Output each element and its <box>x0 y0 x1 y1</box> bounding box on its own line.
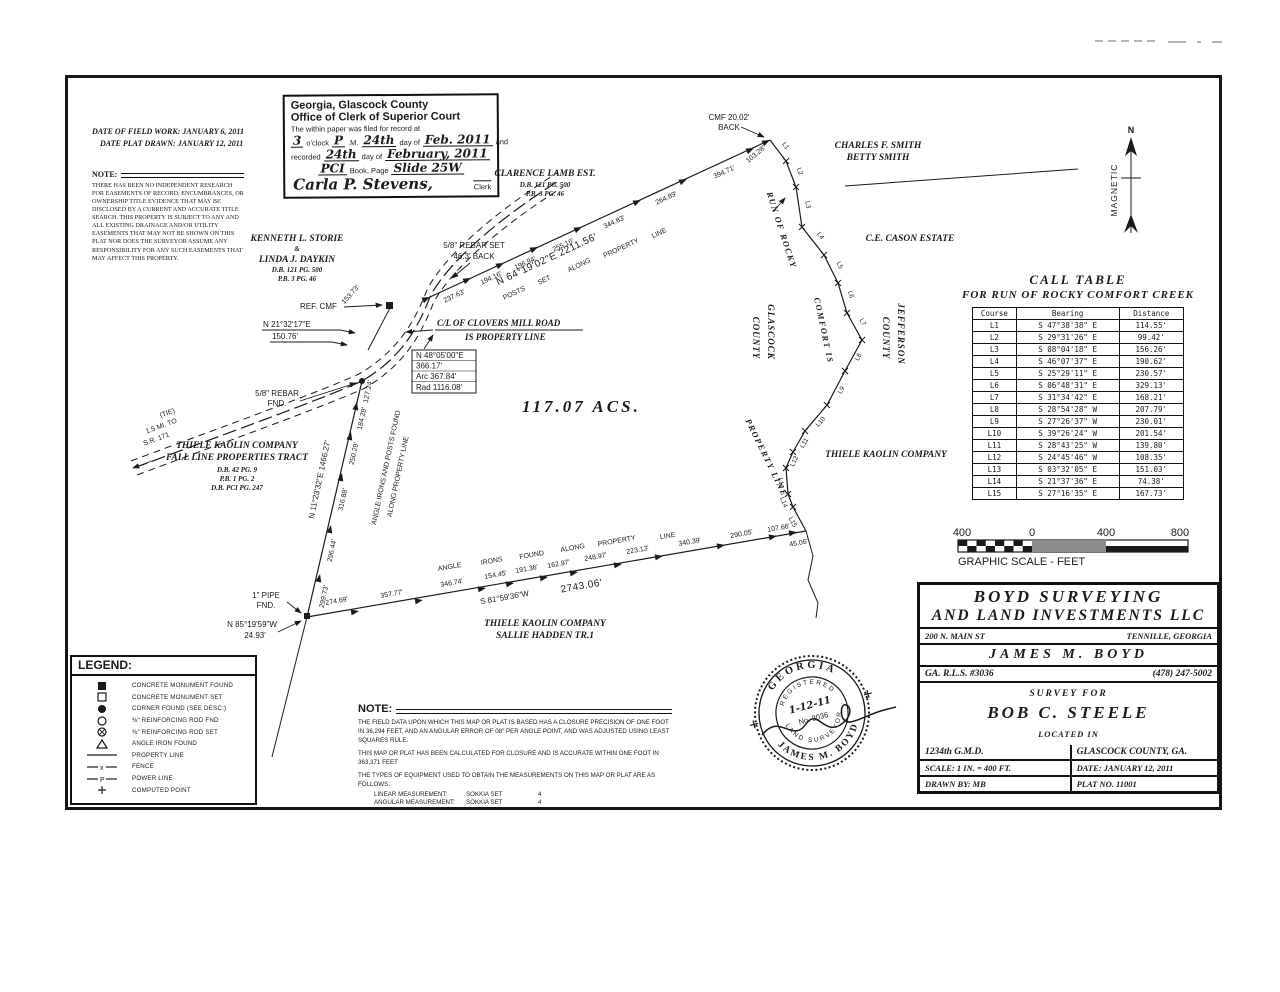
scale-date-row: SCALE: 1 IN. = 400 FT. DATE: JANUARY 12,… <box>920 759 1217 775</box>
phone-number: (478) 247-5002 <box>1153 669 1212 679</box>
cell-bearing: S 08°04'18" E <box>1016 344 1119 356</box>
road-tie-label: 1.5 MI. TO <box>145 418 179 436</box>
stamp-office: Office of Clerk of Superior Court <box>291 110 491 123</box>
road-segment-distance: 153.73' <box>341 284 361 306</box>
adjoiner-storie-ref: D.B. 121 PG. 500 <box>271 266 323 274</box>
county-glascock: GLASCOCK <box>766 304 776 360</box>
scale-tick: 0 <box>1029 527 1035 539</box>
plat-number: PLAT NO. 11001 <box>1072 777 1217 791</box>
cell-course: L3 <box>973 344 1017 356</box>
legend: LEGEND: CONCRETE MONUMENT FOUND CONCRETE… <box>70 655 257 805</box>
road-tie-arrow <box>133 461 152 468</box>
adjoiner-lamb-ref: P.B. 3 PG. 46 <box>526 190 565 198</box>
cell-bearing: S 47°38'38" E <box>1016 320 1119 332</box>
cmf-tie-distance: 150.76' <box>272 332 298 341</box>
pipe-tie-distance: 24.93' <box>244 631 266 640</box>
road-name-line2: IS PROPERTY LINE <box>464 332 546 342</box>
course-label: L7 <box>857 317 867 327</box>
segment-distance: 264.89' <box>655 191 679 207</box>
legend-item: CORNER FOUND (SEE DESC.) <box>72 703 255 715</box>
equip-count: 4 <box>538 791 541 798</box>
pipe-found-label: 1" PIPE <box>252 591 280 600</box>
cell-distance: 108.35' <box>1119 452 1183 464</box>
segment-distance: 357.77' <box>380 589 404 600</box>
fence-glyph: x <box>100 765 104 772</box>
call-table-subtitle: FOR RUN OF ROCKY COMFORT CREEK <box>960 289 1196 301</box>
course-label: L4 <box>815 231 825 241</box>
property-line-icon <box>72 750 132 760</box>
equipment-row: LINEAR MEASUREMENT: SOKKIA SET 4 <box>374 791 672 798</box>
south-line-bearing: S 81°59'36"W <box>479 589 530 607</box>
title-block: BOYD SURVEYING AND LAND INVESTMENTS LLC … <box>917 582 1220 794</box>
adjoiner-storie: LINDA J. DAYKIN <box>258 255 336 265</box>
rebar-found-point <box>359 378 365 384</box>
drawn-by: DRAWN BY: MB <box>920 777 1072 791</box>
easement-note: NOTE: THERE HAS BEEN NO INDEPENDENT RESE… <box>92 170 244 263</box>
company-name-line1: BOYD SURVEYING <box>920 585 1217 607</box>
segment-distance: 127.24' <box>363 380 375 404</box>
segment-distance: 250.29' <box>349 442 361 466</box>
stamp-book-line: PCI Book, Page Slide 25W <box>291 161 491 175</box>
county-location: GLASCOCK COUNTY, GA. <box>1072 745 1217 759</box>
legend-label: ANGLE IRON FOUND <box>132 740 197 747</box>
adjoiner-storie: & <box>294 245 300 253</box>
company-address-row: 200 N. MAIN ST TENNILLE, GEORGIA <box>920 627 1217 643</box>
curve-distance: 366.17' <box>416 362 442 371</box>
col-header-course: Course <box>973 308 1017 320</box>
equipment-row: ANGULAR MEASUREMENT: SOKKIA SET 4 <box>374 799 672 806</box>
segment-distance: 162.97' <box>547 559 571 570</box>
adjoiner-thiele-west-ref: D.B. 42 PG. 9 <box>216 466 258 474</box>
magnetic-label: MAGNETIC <box>1109 164 1119 217</box>
client-name: BOB C. STEELE <box>920 699 1217 725</box>
posts-note-word: LINE <box>651 227 668 240</box>
cell-bearing: S 27°26'37" W <box>1016 416 1119 428</box>
rebar-set-label: 5/8" REBAR SET <box>443 241 505 250</box>
curve-box-arrow <box>424 335 433 349</box>
creek-boundary-line <box>770 140 862 531</box>
rebar-set-label: 46.3' BACK <box>453 252 495 261</box>
scale-label: GRAPHIC SCALE - FEET <box>958 556 1085 568</box>
easement-note-heading: NOTE: <box>92 170 117 179</box>
rebar-found-label: 5/8" REBAR <box>255 389 299 398</box>
posts-note-word: SET <box>537 274 553 286</box>
rebar-found-arrow <box>300 383 356 401</box>
segment-distance: 296.44' <box>327 539 339 563</box>
adjoiner-lamb-ref: D.B. 121 PG. 500 <box>519 181 571 189</box>
irons-note-word: ANGLE <box>437 562 462 573</box>
equip-count: 4 <box>538 799 541 806</box>
scale-tick: 400 <box>1097 527 1115 539</box>
call-table-row: L14S 21°37'36" E74.38' <box>973 476 1184 488</box>
creek-name-part: PROPERTY LINE <box>743 417 789 498</box>
west-line-bearing: N 11°23'32"E 1466.27' <box>307 439 332 519</box>
closure-note-p1: THE FIELD DATA UPON WHICH THIS MAP OR PL… <box>358 719 672 746</box>
cmf-back-label: CMF 20.02' <box>708 113 750 122</box>
cell-course: L14 <box>973 476 1017 488</box>
rebar-found-label: FND. <box>268 399 287 408</box>
cell-distance: 201.54' <box>1119 428 1183 440</box>
segment-distance: 290.05' <box>730 529 754 540</box>
call-table-row: L9S 27°26'37" W230.01' <box>973 416 1184 428</box>
map-date: DATE: JANUARY 12, 2011 <box>1072 761 1217 775</box>
cell-course: L9 <box>973 416 1017 428</box>
cell-bearing: S 03°32'05" E <box>1016 464 1119 476</box>
adjoiner-smith: CHARLES F. SMITH <box>835 141 922 151</box>
fence-line-icon: x <box>72 762 132 772</box>
curve-data-box: N 48°05'00"E 366.17' Arc 367.84' Rad 111… <box>412 335 476 393</box>
segment-distance: 154.45' <box>484 570 508 581</box>
clerk-title: Clerk <box>474 180 492 191</box>
cell-bearing: S 25°29'11" E <box>1016 368 1119 380</box>
course-label: L6 <box>846 290 855 299</box>
adjoiner-thiele-east: THIELE KAOLIN COMPANY <box>825 450 948 460</box>
cell-course: L4 <box>973 356 1017 368</box>
cell-bearing: S 29°31'26" E <box>1016 332 1119 344</box>
legend-label: ⅜" REINFORCING ROD FND <box>132 717 219 724</box>
call-table-row: L5S 25°29'11" E230.57' <box>973 368 1184 380</box>
ref-cmf-arrow <box>344 305 382 307</box>
legend-item: ⅜" REINFORCING ROD FND <box>72 715 255 727</box>
cell-bearing: S 27°16'35" E <box>1016 488 1119 500</box>
irons-note-word: LINE <box>659 532 676 542</box>
legend-label: CONCRETE MONUMENT FOUND <box>132 682 233 689</box>
posts-note-word: ALONG <box>567 257 592 274</box>
legend-item: PROPERTY LINE <box>72 750 255 762</box>
legend-label: PROPERTY LINE <box>132 752 184 759</box>
computed-point-icon <box>72 785 132 795</box>
closure-note-heading: NOTE: <box>358 703 392 715</box>
west-line-ticks <box>315 401 360 582</box>
adjoiner-thiele-south: SALLIE HADDEN TR.1 <box>496 631 594 641</box>
legend-label: ⅜" REINFORCING ROD SET <box>132 729 218 736</box>
company-address: 200 N. MAIN ST <box>925 631 985 641</box>
power-line-icon: P <box>72 774 132 784</box>
cell-distance: 99.42' <box>1119 332 1183 344</box>
legend-item: CONCRETE MONUMENT SET <box>72 692 255 704</box>
plat-sheet: N 64°19'02"E 2211.56' 237.63' 194.16' 19… <box>0 0 1280 992</box>
pipe-tie-bearing: N 85°19'59"W <box>227 620 277 629</box>
equip-label: ANGULAR MEASUREMENT: <box>374 799 466 806</box>
cell-course: L2 <box>973 332 1017 344</box>
segment-distance: 45.06' <box>789 538 809 548</box>
cmf-tie-line <box>368 308 390 350</box>
west-line-extension <box>272 617 307 757</box>
segment-distance: 346.74' <box>440 578 464 589</box>
scale-tick: 800 <box>1171 527 1189 539</box>
license-number: GA. R.L.S. #3036 <box>925 669 994 679</box>
adjoiner-thiele-west-ref: D.B. PCI PG. 247 <box>210 484 263 492</box>
legend-label: POWER LINE <box>132 775 173 782</box>
call-table-row: L4S 46°07'37" E190.62' <box>973 356 1184 368</box>
surveyor-seal: GEORGIA REGISTERED LAND SURVEYOR JAMES M… <box>736 642 887 785</box>
road-name-arrow <box>406 330 433 332</box>
course-label: L14 <box>778 496 789 509</box>
curve-radius: Rad 1116.08' <box>416 383 463 392</box>
located-in-label: LOCATED IN <box>920 725 1217 745</box>
segment-distance: 316.88' <box>338 488 350 512</box>
cell-distance: 230.01' <box>1119 416 1183 428</box>
cell-course: L7 <box>973 392 1017 404</box>
cell-distance: 230.57' <box>1119 368 1183 380</box>
cell-bearing: S 31°34'42" E <box>1016 392 1119 404</box>
cmf-tie-bearing: N 21°32'17"E <box>263 320 311 329</box>
cell-course: L12 <box>973 452 1017 464</box>
course-label: L3 <box>803 201 811 210</box>
surveyor-name: JAMES M. BOYD <box>920 643 1217 665</box>
posts-note-word: PROPERTY <box>602 237 640 260</box>
cell-distance: 167.73' <box>1119 488 1183 500</box>
plat-drawn-date: DATE PLAT DRAWN: JANUARY 12, 2011 <box>100 138 302 150</box>
segment-distance: 184.29' <box>357 407 369 431</box>
segment-distance: 248.97' <box>584 552 608 563</box>
legend-item: P POWER LINE <box>72 773 255 785</box>
stamp-dayof: day of <box>399 138 419 147</box>
adjoiner-smith: BETTY SMITH <box>846 153 910 163</box>
drawn-plat-row: DRAWN BY: MB PLAT NO. 11001 <box>920 775 1217 791</box>
cell-distance: 151.03' <box>1119 464 1183 476</box>
curve-bearing: N 48°05'00"E <box>416 351 464 360</box>
legend-item: COMPUTED POINT <box>72 784 255 796</box>
legend-label: COMPUTED POINT <box>132 787 191 794</box>
cell-course: L11 <box>973 440 1017 452</box>
acreage-label: 117.07 ACS. <box>522 397 641 416</box>
survey-dates: DATE OF FIELD WORK: JANUARY 6, 2011 DATE… <box>92 126 302 150</box>
irons-note-word: IRONS <box>480 556 503 567</box>
call-table-row: L7S 31°34'42" E168.21' <box>973 392 1184 404</box>
stamp-ampm: P <box>332 134 345 147</box>
stamp-oclock: o'clock <box>306 138 329 147</box>
irons-note-word: PROPERTY <box>597 535 636 549</box>
adjoiner-thiele-west-ref: P.B. 1 PG. 2 <box>220 475 255 483</box>
call-table-row: L3S 08°04'18" E156.26' <box>973 344 1184 356</box>
company-city: TENNILLE, GEORGIA <box>1127 631 1212 641</box>
stamp-m: .M. <box>348 138 358 147</box>
clerk-signature: Carla P. Stevens, <box>291 177 435 193</box>
rule <box>121 173 244 178</box>
south-line-total: 2743.06' <box>560 577 603 595</box>
stamp-book-label: Book, Page <box>350 166 389 175</box>
stamp-and: and <box>496 137 509 146</box>
segment-distance: 274.69' <box>325 596 349 607</box>
map-scale: SCALE: 1 IN. = 400 FT. <box>920 761 1072 775</box>
cell-course: L15 <box>973 488 1017 500</box>
curve-arc: Arc 367.84' <box>416 372 457 381</box>
col-header-bearing: Bearing <box>1016 308 1119 320</box>
stamp-signature-row: Carla P. Stevens, Clerk <box>291 176 491 192</box>
call-table-row: L1S 47°38'38" E114.55' <box>973 320 1184 332</box>
pipe-tie-arrow <box>278 621 301 632</box>
cell-bearing: S 39°26'24" W <box>1016 428 1119 440</box>
cell-course: L5 <box>973 368 1017 380</box>
closure-note-p2: THIS MAP OR PLAT HAS BEEN CALCULATED FOR… <box>358 750 672 768</box>
adjoiner-storie: KENNETH L. STORIE <box>250 234 344 244</box>
cell-course: L1 <box>973 320 1017 332</box>
road-name-line1: C/L OF CLOVERS MILL ROAD <box>437 318 561 328</box>
equip-value: SOKKIA SET <box>466 791 538 798</box>
segment-distance: 191.36' <box>515 564 539 575</box>
stamp-recorded: recorded <box>291 152 321 161</box>
cell-bearing: S 21°37'36" E <box>1016 476 1119 488</box>
call-table-row: L15S 27°16'35" E167.73' <box>973 488 1184 500</box>
creek-name-part: COMFORT IS <box>812 296 836 364</box>
irons-note-word: FOUND <box>519 550 545 561</box>
legend-item: ANGLE IRON FOUND <box>72 738 255 750</box>
north-label: N <box>1128 125 1135 135</box>
reinforcing-rod-found-icon <box>72 716 132 726</box>
pipe-found-arrow <box>287 602 301 613</box>
clerk-recording-stamp: Georgia, Glascock County Office of Clerk… <box>283 93 500 199</box>
angle-iron-found-icon <box>72 739 132 749</box>
field-work-date: DATE OF FIELD WORK: JANUARY 6, 2011 <box>92 126 302 138</box>
legend-item: CONCRETE MONUMENT FOUND <box>72 680 255 692</box>
cell-distance: 156.26' <box>1119 344 1183 356</box>
stamp-recorded-day: 24th <box>324 148 359 161</box>
call-table: CALL TABLE FOR RUN OF ROCKY COMFORT CREE… <box>960 272 1196 500</box>
reinforcing-rod-set-icon <box>72 727 132 737</box>
call-table-row: L10S 39°26'24" W201.54' <box>973 428 1184 440</box>
course-label: L2 <box>795 167 804 177</box>
cell-bearing: S 46°07'37" E <box>1016 356 1119 368</box>
cell-distance: 207.79' <box>1119 404 1183 416</box>
county-glascock: COUNTY <box>751 317 761 360</box>
segment-distance: 237.63' <box>443 289 467 305</box>
irons-note-word: ALONG <box>560 543 585 554</box>
cell-course: L8 <box>973 404 1017 416</box>
cell-distance: 74.38' <box>1119 476 1183 488</box>
cell-course: L13 <box>973 464 1017 476</box>
call-table-row: L6S 06°48'31" E329.13' <box>973 380 1184 392</box>
stamp-filed-day: 24th <box>361 134 396 147</box>
gmd-district: 1234th G.M.D. <box>920 745 1072 759</box>
call-table-row: L11S 28°43'25" W139.80' <box>973 440 1184 452</box>
scale-tick: 400 <box>953 527 971 539</box>
stamp-filed-month: Feb. 2011 <box>423 133 493 146</box>
segment-distance: 103.28' <box>745 145 767 165</box>
segment-distance: 107.66' <box>767 523 791 534</box>
license-row: GA. R.L.S. #3036 (478) 247-5002 <box>920 665 1217 681</box>
adjoiner-cason: C.E. CASON ESTATE <box>866 234 955 244</box>
closure-note: NOTE: THE FIELD DATA UPON WHICH THIS MAP… <box>358 703 672 806</box>
cmf-back-arrow <box>741 127 764 137</box>
col-header-distance: Distance <box>1119 308 1183 320</box>
cell-course: L10 <box>973 428 1017 440</box>
cell-bearing: S 24°45'46" W <box>1016 452 1119 464</box>
posts-note-word: POSTS <box>502 285 527 302</box>
cmf-tie-arrow2 <box>332 342 347 345</box>
call-table-row: L12S 24°45'46" W108.35' <box>973 452 1184 464</box>
rule <box>396 709 672 714</box>
closure-note-p3: THE TYPES OF EQUIPMENT USED TO OBTAIN TH… <box>358 772 672 790</box>
graphic-scale: 400 0 400 800 GRAPHIC SCALE - FEET <box>953 527 1189 568</box>
adjoiner-lamb: CLARENCE LAMB EST. <box>494 169 595 179</box>
equip-label: LINEAR MEASUREMENT: <box>374 791 466 798</box>
course-label: L8 <box>854 352 864 362</box>
call-table-row: L8S 28°54'28" W207.79' <box>973 404 1184 416</box>
legend-title: LEGEND: <box>72 657 255 676</box>
stamp-recorded-dayof: day of <box>362 152 382 161</box>
legend-label: FENCE <box>132 763 154 770</box>
survey-for-label: SURVEY FOR <box>920 683 1217 699</box>
adjoiner-thiele-south: THIELE KAOLIN COMPANY <box>484 619 607 629</box>
north-arrow: N MAGNETIC <box>1109 125 1141 233</box>
course-label: L1 <box>780 141 790 151</box>
cell-distance: 139.80' <box>1119 440 1183 452</box>
south-line-ticks <box>351 529 798 615</box>
legend-item: x FENCE <box>72 761 255 773</box>
course-label: L5 <box>835 261 845 271</box>
pipe-found-label: FND. <box>257 601 276 610</box>
cell-bearing: S 06°48'31" E <box>1016 380 1119 392</box>
corner-found-icon <box>72 704 132 714</box>
segment-distance: 223.13' <box>626 545 650 556</box>
cell-course: L6 <box>973 380 1017 392</box>
cell-distance: 190.62' <box>1119 356 1183 368</box>
company-name-line2: AND LAND INVESTMENTS LLC <box>920 607 1217 627</box>
county-jefferson: COUNTY <box>881 317 891 360</box>
cell-distance: 114.55' <box>1119 320 1183 332</box>
rebar-set-arrow <box>452 263 470 278</box>
adjoiner-thiele-west: THIELE KAOLIN COMPANY <box>176 441 299 451</box>
call-table-row: L13S 03°32'05" E151.03' <box>973 464 1184 476</box>
south-property-line <box>307 531 806 617</box>
cell-distance: 329.13' <box>1119 380 1183 392</box>
power-glyph: P <box>100 777 105 784</box>
segment-distance: 394.71' <box>713 165 737 181</box>
call-table-row: L2S 29°31'26" E99.42' <box>973 332 1184 344</box>
concrete-monument-set-icon <box>72 692 132 702</box>
cmf-back-label: BACK <box>718 123 740 132</box>
cell-bearing: S 28°43'25" W <box>1016 440 1119 452</box>
legend-label: CONCRETE MONUMENT SET <box>132 694 223 701</box>
concrete-monument-found-icon <box>72 681 132 691</box>
cell-distance: 168.21' <box>1119 392 1183 404</box>
call-table-grid: Course Bearing Distance L1S 47°38'38" E1… <box>972 307 1184 500</box>
adjoiner-storie-ref: P.B. 3 PG. 46 <box>278 275 317 283</box>
county-jefferson: JEFFERSON <box>896 302 906 365</box>
scan-artifact-dashes <box>1095 41 1222 42</box>
course-label: L9 <box>837 385 847 395</box>
cell-bearing: S 28°54'28" W <box>1016 404 1119 416</box>
stamp-page-value: Slide 25W <box>392 161 464 175</box>
ref-cmf-monument <box>386 302 393 309</box>
stamp-recorded-month: February, 2011 <box>385 147 490 161</box>
segment-distance: 340.39' <box>678 537 702 548</box>
ref-cmf-label: REF. CMF <box>300 302 337 311</box>
legend-item: ⅜" REINFORCING ROD SET <box>72 726 255 738</box>
equip-value: SOKKIA SET <box>466 799 538 806</box>
legend-label: CORNER FOUND (SEE DESC.) <box>132 705 226 712</box>
cmf-tie-arrow <box>340 330 355 333</box>
pipe-found-monument <box>304 613 310 619</box>
cason-division-line <box>845 169 1078 186</box>
adjoiner-thiele-west: FALL LINE PROPERTIES TRACT <box>165 453 309 463</box>
segment-distance: 344.83' <box>603 215 627 231</box>
stamp-book-value: PCI <box>319 162 347 175</box>
call-table-title: CALL TABLE <box>960 272 1196 288</box>
easement-note-body: THERE HAS BEEN NO INDEPENDENT RESEARCH F… <box>92 182 244 263</box>
